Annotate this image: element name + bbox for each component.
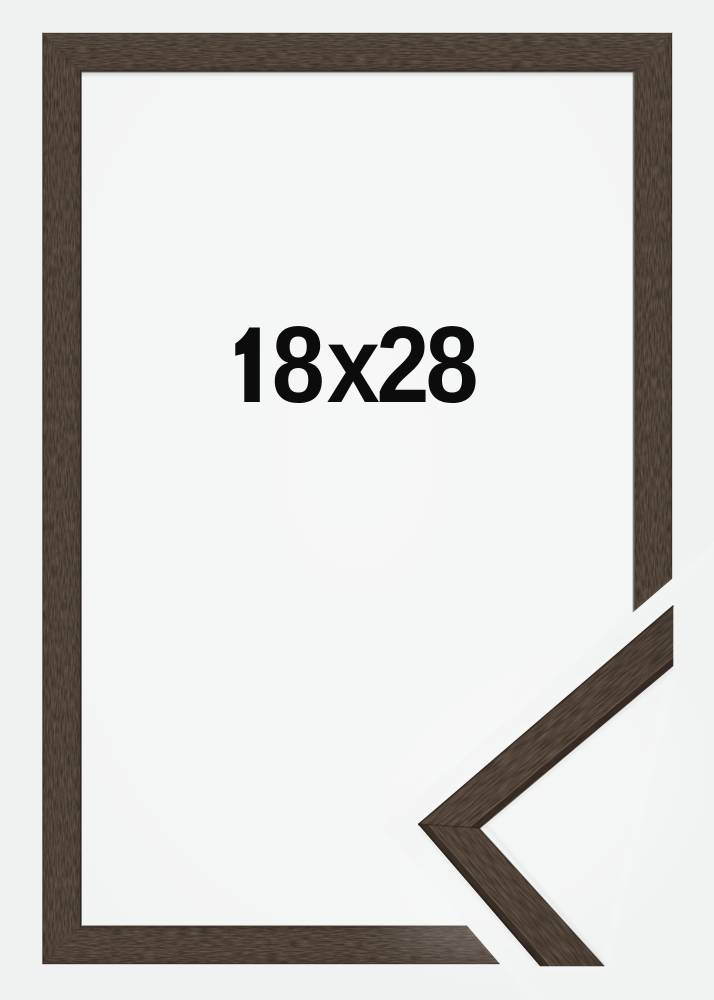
svg-text:8: 8 [425, 304, 478, 425]
svg-text:x: x [327, 304, 380, 425]
svg-text:8: 8 [272, 304, 325, 425]
svg-text:2: 2 [376, 304, 429, 425]
